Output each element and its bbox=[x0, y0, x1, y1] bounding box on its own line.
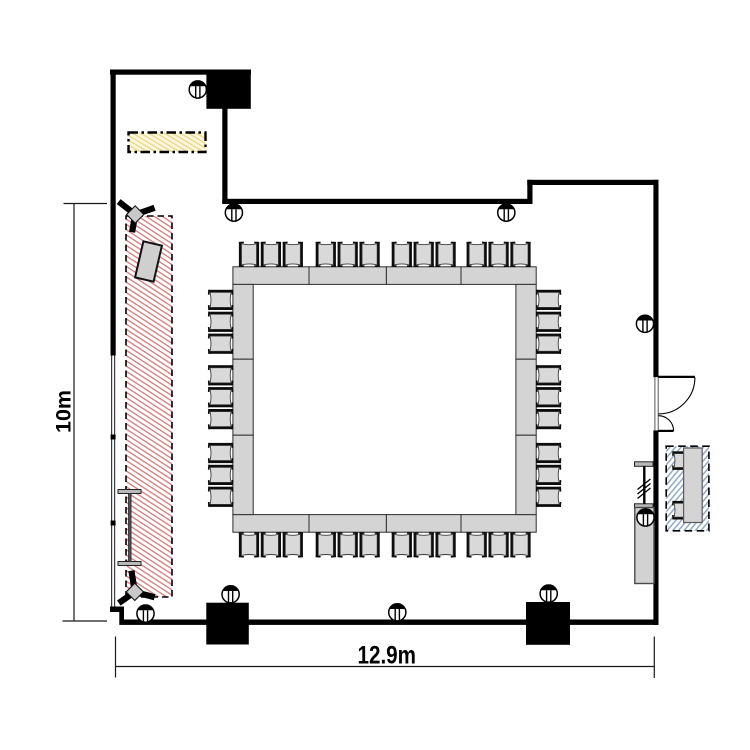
svg-text:12.9m: 12.9m bbox=[358, 641, 417, 669]
svg-text:10m: 10m bbox=[52, 390, 76, 433]
